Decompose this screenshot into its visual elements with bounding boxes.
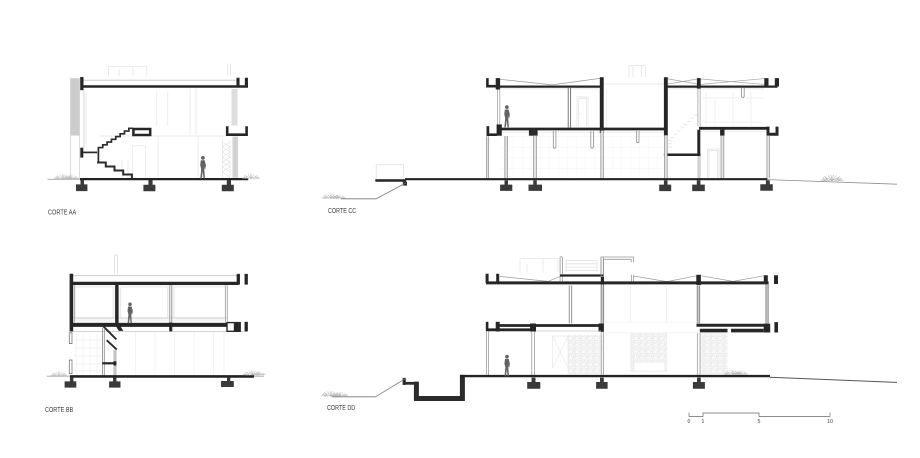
svg-text:CORTE CC: CORTE CC — [328, 208, 356, 215]
svg-text:0: 0 — [688, 419, 691, 425]
svg-text:CORTE DD: CORTE DD — [327, 405, 355, 412]
svg-text:CORTE BB: CORTE BB — [45, 407, 73, 414]
svg-text:10: 10 — [827, 419, 833, 425]
svg-text:CORTE AA: CORTE AA — [48, 209, 76, 216]
svg-text:5: 5 — [758, 419, 761, 425]
svg-text:1: 1 — [702, 419, 705, 425]
